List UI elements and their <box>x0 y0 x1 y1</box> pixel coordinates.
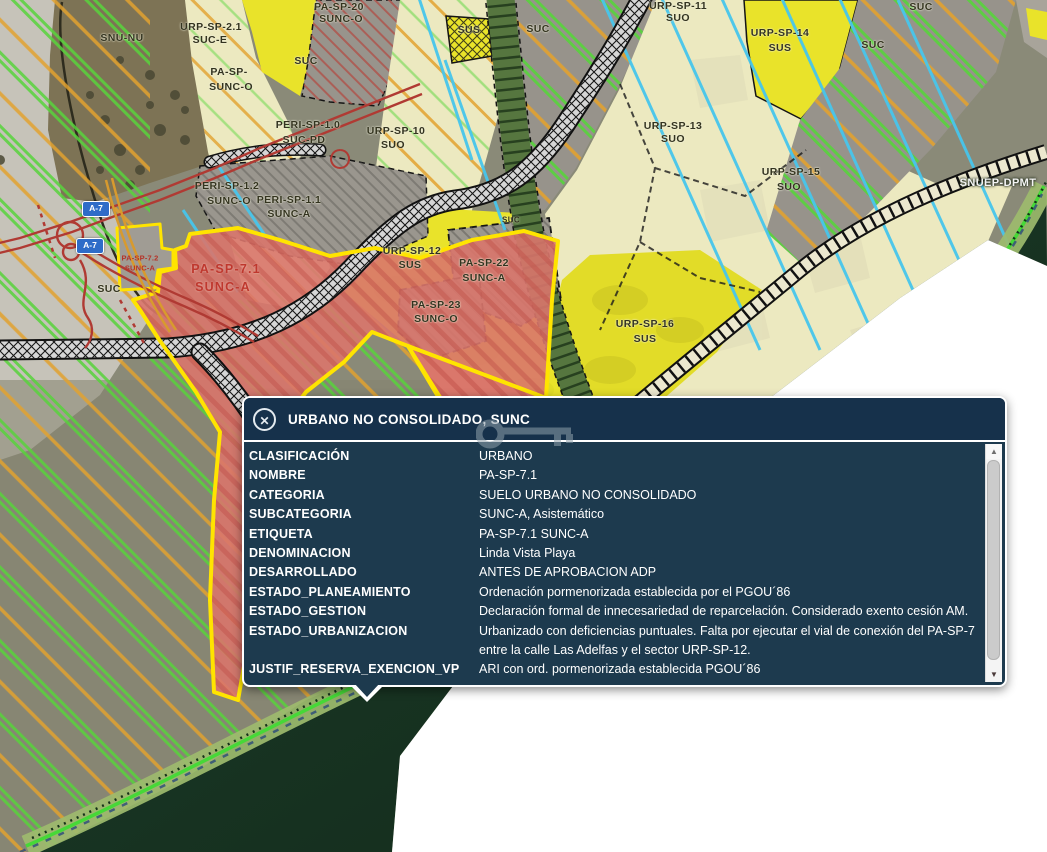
attribute-row: CATEGORIASUELO URBANO NO CONSOLIDADO <box>249 486 979 505</box>
attribute-value: PA-SP-7.1 <box>479 466 979 485</box>
attribute-name: JUSTIF_RESERVA_EXENCION_VP <box>249 660 479 679</box>
scroll-thumb[interactable] <box>987 460 1000 660</box>
attribute-value: SUELO URBANO NO CONSOLIDADO <box>479 486 979 505</box>
attribute-name: ESTADO_PLANEAMIENTO <box>249 583 479 602</box>
attribute-value: ANTES DE APROBACION ADP <box>479 563 979 582</box>
attribute-row: ESTADO_PLANEAMIENTOOrdenación pormenoriz… <box>249 583 979 602</box>
attribute-name: ESTADO_GESTION <box>249 602 479 621</box>
attribute-value: Urbanizado con deficiencias puntuales. F… <box>479 622 979 661</box>
scrollbar[interactable]: ▲ ▼ <box>985 444 1002 682</box>
feature-info-popup: ✕ URBANO NO CONSOLIDADO, SUNC CLASIFICAC… <box>242 396 1007 687</box>
attribute-value: Ordenación pormenorizada establecida por… <box>479 583 979 602</box>
attribute-row: SUBCATEGORIASUNC-A, Asistemático <box>249 505 979 524</box>
attribute-value: PA-SP-7.1 SUNC-A <box>479 525 979 544</box>
attribute-name: SUBCATEGORIA <box>249 505 479 524</box>
attribute-row: ESTADO_GESTIONDeclaración formal de inne… <box>249 602 979 621</box>
attribute-name: CLASIFICACIÓN <box>249 447 479 466</box>
attribute-name: DENOMINACION <box>249 544 479 563</box>
attribute-value: Declaración formal de innecesariedad de … <box>479 602 979 621</box>
map-viewer: SNU-NUURP-SP-2.1SUC-EPA-SP-20SUNC-OSUCPA… <box>0 0 1047 852</box>
attribute-name: ESTADO_URBANIZACION <box>249 622 479 661</box>
attribute-value: ARI con ord. pormenorizada establecida P… <box>479 660 979 679</box>
attribute-row: ETIQUETAPA-SP-7.1 SUNC-A <box>249 525 979 544</box>
attribute-row: DENOMINACIONLinda Vista Playa <box>249 544 979 563</box>
popup-attribute-table: CLASIFICACIÓNURBANONOMBREPA-SP-7.1CATEGO… <box>244 442 1005 685</box>
popup-title: URBANO NO CONSOLIDADO, SUNC <box>288 412 530 427</box>
popup-header: ✕ URBANO NO CONSOLIDADO, SUNC <box>244 398 1005 442</box>
scroll-down-arrow[interactable]: ▼ <box>986 667 1002 682</box>
close-icon[interactable]: ✕ <box>253 408 276 431</box>
attribute-value: Linda Vista Playa <box>479 544 979 563</box>
attribute-name: CATEGORIA <box>249 486 479 505</box>
attribute-row: ESTADO_URBANIZACIONUrbanizado con defici… <box>249 622 979 661</box>
attribute-row: JUSTIF_RESERVA_EXENCION_VPARI con ord. p… <box>249 660 979 679</box>
attribute-row: CLASIFICACIÓNURBANO <box>249 447 979 466</box>
attribute-row: NOMBREPA-SP-7.1 <box>249 466 979 485</box>
attribute-name: DESARROLLADO <box>249 563 479 582</box>
attribute-value: URBANO <box>479 447 979 466</box>
attribute-name: NOMBRE <box>249 466 479 485</box>
attribute-row: DESARROLLADOANTES DE APROBACION ADP <box>249 563 979 582</box>
scroll-up-arrow[interactable]: ▲ <box>986 444 1002 459</box>
attribute-value: SUNC-A, Asistemático <box>479 505 979 524</box>
attribute-name: ETIQUETA <box>249 525 479 544</box>
